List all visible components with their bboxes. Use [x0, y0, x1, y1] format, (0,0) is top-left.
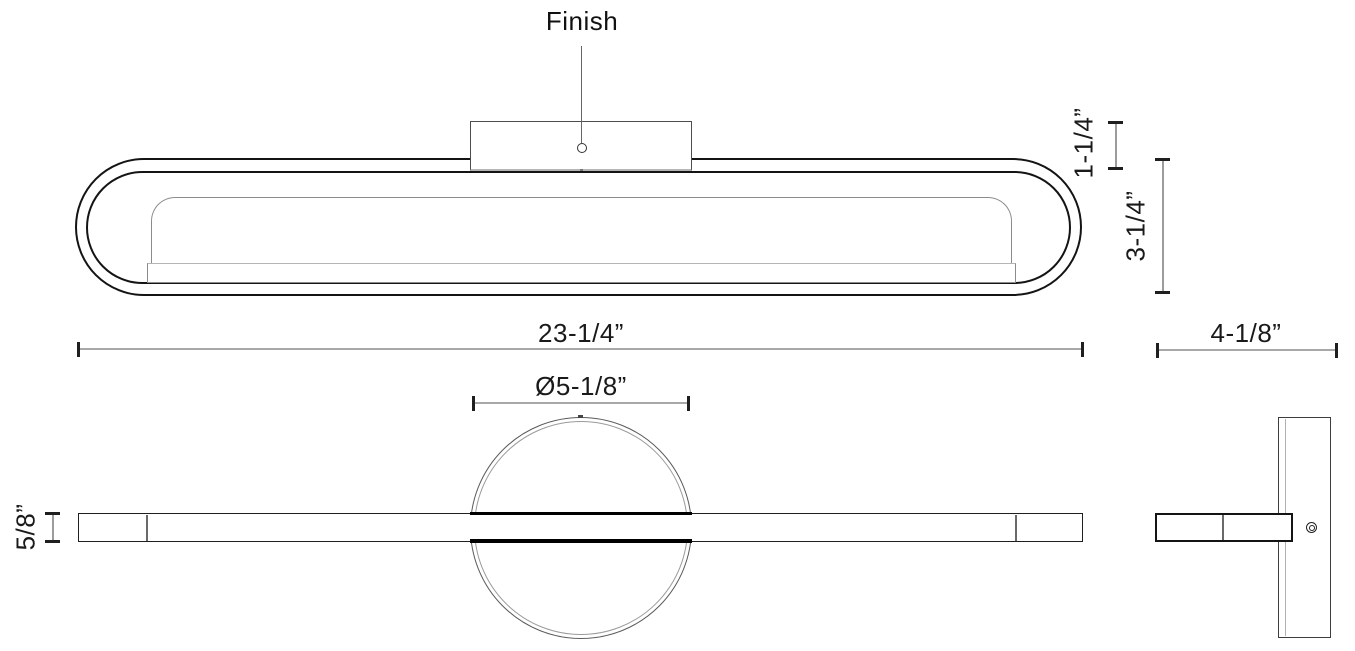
dimension-line [1162, 160, 1164, 293]
dimension-tick [45, 512, 60, 515]
light-bar-plan [78, 513, 1083, 542]
center-mark [580, 169, 583, 171]
dimension-tick [687, 396, 690, 411]
dimension-tick [77, 342, 80, 357]
dimension-tick [1108, 167, 1123, 170]
bar-endcap-seam [1222, 515, 1224, 540]
dimension-line [79, 348, 1083, 350]
dimension-tick [45, 540, 60, 543]
dimension-line [474, 402, 688, 404]
canopy-center-mark [578, 415, 583, 418]
screw-icon-inner [1309, 525, 1315, 531]
finish-callout-label: Finish [546, 6, 618, 37]
screw-hole-icon [577, 143, 587, 153]
dimension-tick [472, 396, 475, 411]
bar-endcap-seam [1015, 515, 1017, 541]
dimension-label-overall-depth: 4-1/8” [1211, 318, 1282, 349]
dimension-tick [1156, 343, 1159, 358]
dimension-tick [1108, 121, 1123, 124]
dimension-line [1157, 349, 1337, 351]
light-bar-side [1155, 513, 1293, 542]
dimension-line [52, 514, 54, 542]
fixture-lens [151, 197, 1012, 264]
dimension-label-fixture-height: 3-1/4” [1121, 191, 1152, 262]
bar-endcap-seam [146, 515, 148, 541]
fixture-lens-base [147, 263, 1016, 283]
technical-drawing: Finish 1-1/4” 3-1/4” 23-1/4” 4-1/8” Ø5-1… [0, 0, 1355, 651]
dimension-tick [1155, 291, 1170, 294]
dimension-line [1115, 123, 1117, 169]
dimension-label-fixture-width: 23-1/4” [538, 318, 624, 349]
dimension-tick [1335, 343, 1338, 358]
dimension-label-bar-thickness: 5/8” [11, 504, 42, 551]
dimension-tick [1081, 342, 1084, 357]
bar-edge-over-canopy [470, 539, 692, 543]
finish-leader-line [581, 46, 582, 143]
bar-edge-over-canopy [470, 512, 692, 516]
dimension-label-mount-depth: 1-1/4” [1069, 108, 1100, 179]
dimension-label-canopy-diameter: Ø5-1/8” [535, 371, 627, 402]
dimension-tick [1155, 158, 1170, 161]
